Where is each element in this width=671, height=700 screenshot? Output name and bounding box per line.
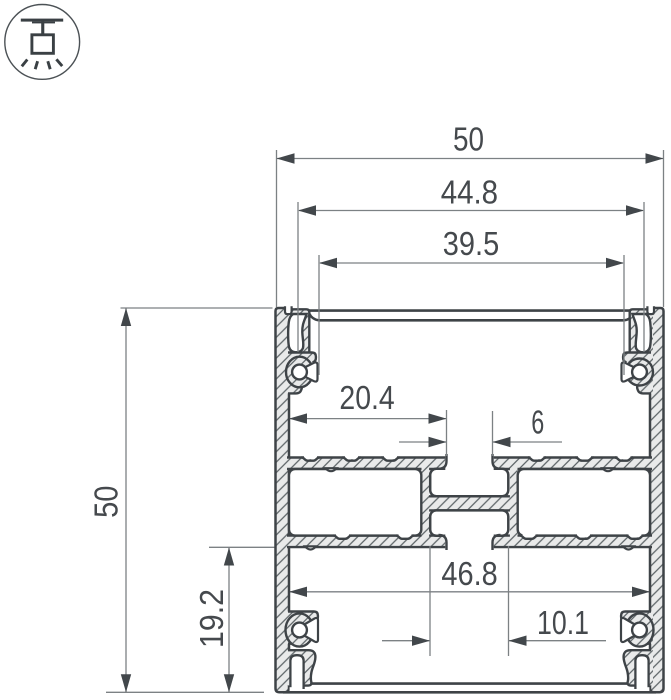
svg-text:50: 50	[89, 486, 126, 518]
svg-text:6: 6	[531, 404, 544, 441]
svg-text:10.1: 10.1	[537, 605, 589, 642]
svg-text:50: 50	[453, 121, 484, 158]
svg-text:44.8: 44.8	[441, 175, 498, 212]
svg-text:20.4: 20.4	[339, 380, 394, 417]
svg-text:39.5: 39.5	[443, 226, 499, 263]
svg-text:46.8: 46.8	[441, 556, 497, 593]
svg-text:19.2: 19.2	[194, 589, 231, 648]
